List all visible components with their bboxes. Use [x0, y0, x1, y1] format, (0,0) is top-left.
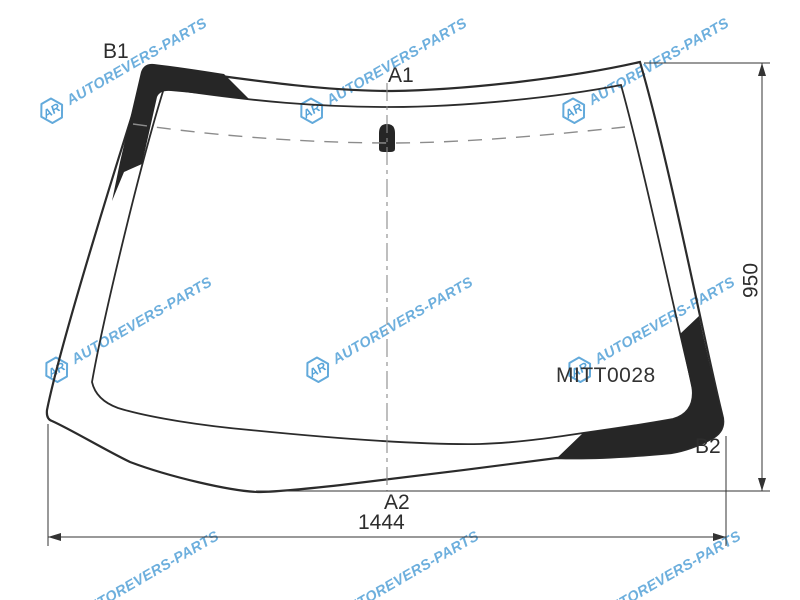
label-b2: B2	[695, 436, 721, 457]
arrow-right-icon	[713, 533, 726, 541]
windshield-diagram: AR AUTOREVERS-PARTS AR AUTOREVERS-PARTS …	[0, 0, 800, 600]
arrow-left-icon	[48, 533, 61, 541]
height-dimension-value: 950	[741, 251, 762, 311]
label-a1: A1	[388, 65, 414, 86]
arrow-up-icon	[758, 63, 766, 76]
part-code: MITT0028	[556, 365, 656, 386]
label-b1: B1	[103, 41, 129, 62]
frit-band-top-left	[112, 64, 250, 201]
arrow-down-icon	[758, 478, 766, 491]
label-a2: A2	[384, 492, 410, 513]
width-dimension-value: 1444	[358, 512, 405, 533]
